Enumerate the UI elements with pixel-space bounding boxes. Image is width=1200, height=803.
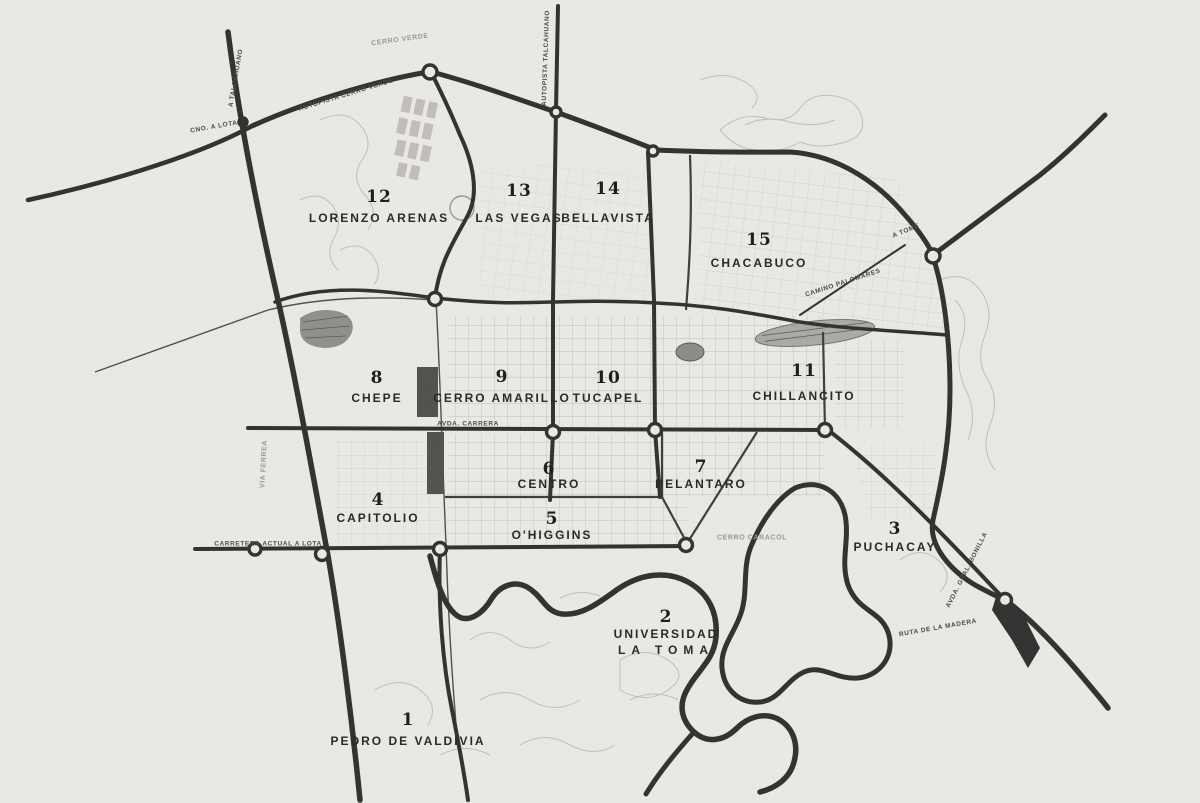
road-label-avda-carrera: AVDA. CARRERA xyxy=(437,421,499,428)
district-number-las-vegas: 13 xyxy=(506,181,532,201)
road-label-a-tome: A TOME xyxy=(891,222,920,239)
road-label-autopista-talcahuano: AUTOPISTA TALCAHUANO xyxy=(541,10,551,106)
district-name-lorenzo-arenas: LORENZO ARENAS xyxy=(309,211,449,225)
scanned-city-map: 1PEDRO DE VALDIVIA2UNIVERSIDADLA TOMA3PU… xyxy=(0,0,1200,803)
road-label-carretera-actual-a-lota: CARRETERA ACTUAL A LOTA xyxy=(214,541,322,548)
district-name-cerro-amarillo: CERRO AMARILLO xyxy=(433,391,571,405)
district-number-centro: 6 xyxy=(543,459,556,479)
district-number-cerro-amarillo: 9 xyxy=(496,367,509,387)
map-labels-layer: 1PEDRO DE VALDIVIA2UNIVERSIDADLA TOMA3PU… xyxy=(0,0,1200,803)
district-name-pedro-de-valdivia: PEDRO DE VALDIVIA xyxy=(330,734,485,748)
road-label-autopista-cerro-verde: AUTOPISTA CERRO VERDE xyxy=(298,77,395,113)
district-name2-universidad: LA TOMA xyxy=(618,643,714,657)
district-name-pelantaro: PELANTARO xyxy=(655,477,747,491)
district-number-pelantaro: 7 xyxy=(695,457,708,477)
road-label-camino-palomares: CAMINO PALOMARES xyxy=(804,267,881,298)
district-number-capitolio: 4 xyxy=(372,490,385,510)
district-number-bellavista: 14 xyxy=(595,179,621,199)
district-number-universidad: 2 xyxy=(660,607,673,627)
district-name-o-higgins: O'HIGGINS xyxy=(512,528,593,542)
road-label-a-talcahuano: A TALCAHUANO xyxy=(227,48,244,107)
district-number-chacabuco: 15 xyxy=(746,230,772,250)
district-number-lorenzo-arenas: 12 xyxy=(366,187,392,207)
road-label-avda-gral-bonilla: AVDA. GRAL. BONILLA xyxy=(945,531,989,609)
district-name-bellavista: BELLAVISTA xyxy=(561,211,655,225)
district-name-centro: CENTRO xyxy=(518,477,581,491)
district-name-chillancito: CHILLANCITO xyxy=(752,389,855,403)
road-label-via-ferrea: VIA FERREA xyxy=(259,440,269,488)
district-number-pedro-de-valdivia: 1 xyxy=(402,710,415,730)
district-number-puchacay: 3 xyxy=(889,519,902,539)
road-label-cerro-caracol: CERRO CARACOL xyxy=(717,535,787,542)
district-number-tucapel: 10 xyxy=(595,368,621,388)
district-number-o-higgins: 5 xyxy=(546,509,559,529)
road-label-ruta-de-la-madera: RUTA DE LA MADERA xyxy=(899,618,978,639)
district-name-chepe: CHEPE xyxy=(351,391,402,405)
road-label-cerro-verde: CERRO VERDE xyxy=(371,33,429,48)
district-name-puchacay: PUCHACAY xyxy=(854,540,937,554)
district-name-universidad: UNIVERSIDAD xyxy=(614,627,719,641)
road-label-cno-a-lota: CNO. A LOTA xyxy=(190,119,238,134)
district-number-chillancito: 11 xyxy=(791,361,817,381)
district-name-chacabuco: CHACABUCO xyxy=(711,256,808,270)
district-name-las-vegas: LAS VEGAS xyxy=(475,211,562,225)
district-name-capitolio: CAPITOLIO xyxy=(336,511,419,525)
district-number-chepe: 8 xyxy=(371,368,384,388)
district-name-tucapel: TUCAPEL xyxy=(573,391,644,405)
